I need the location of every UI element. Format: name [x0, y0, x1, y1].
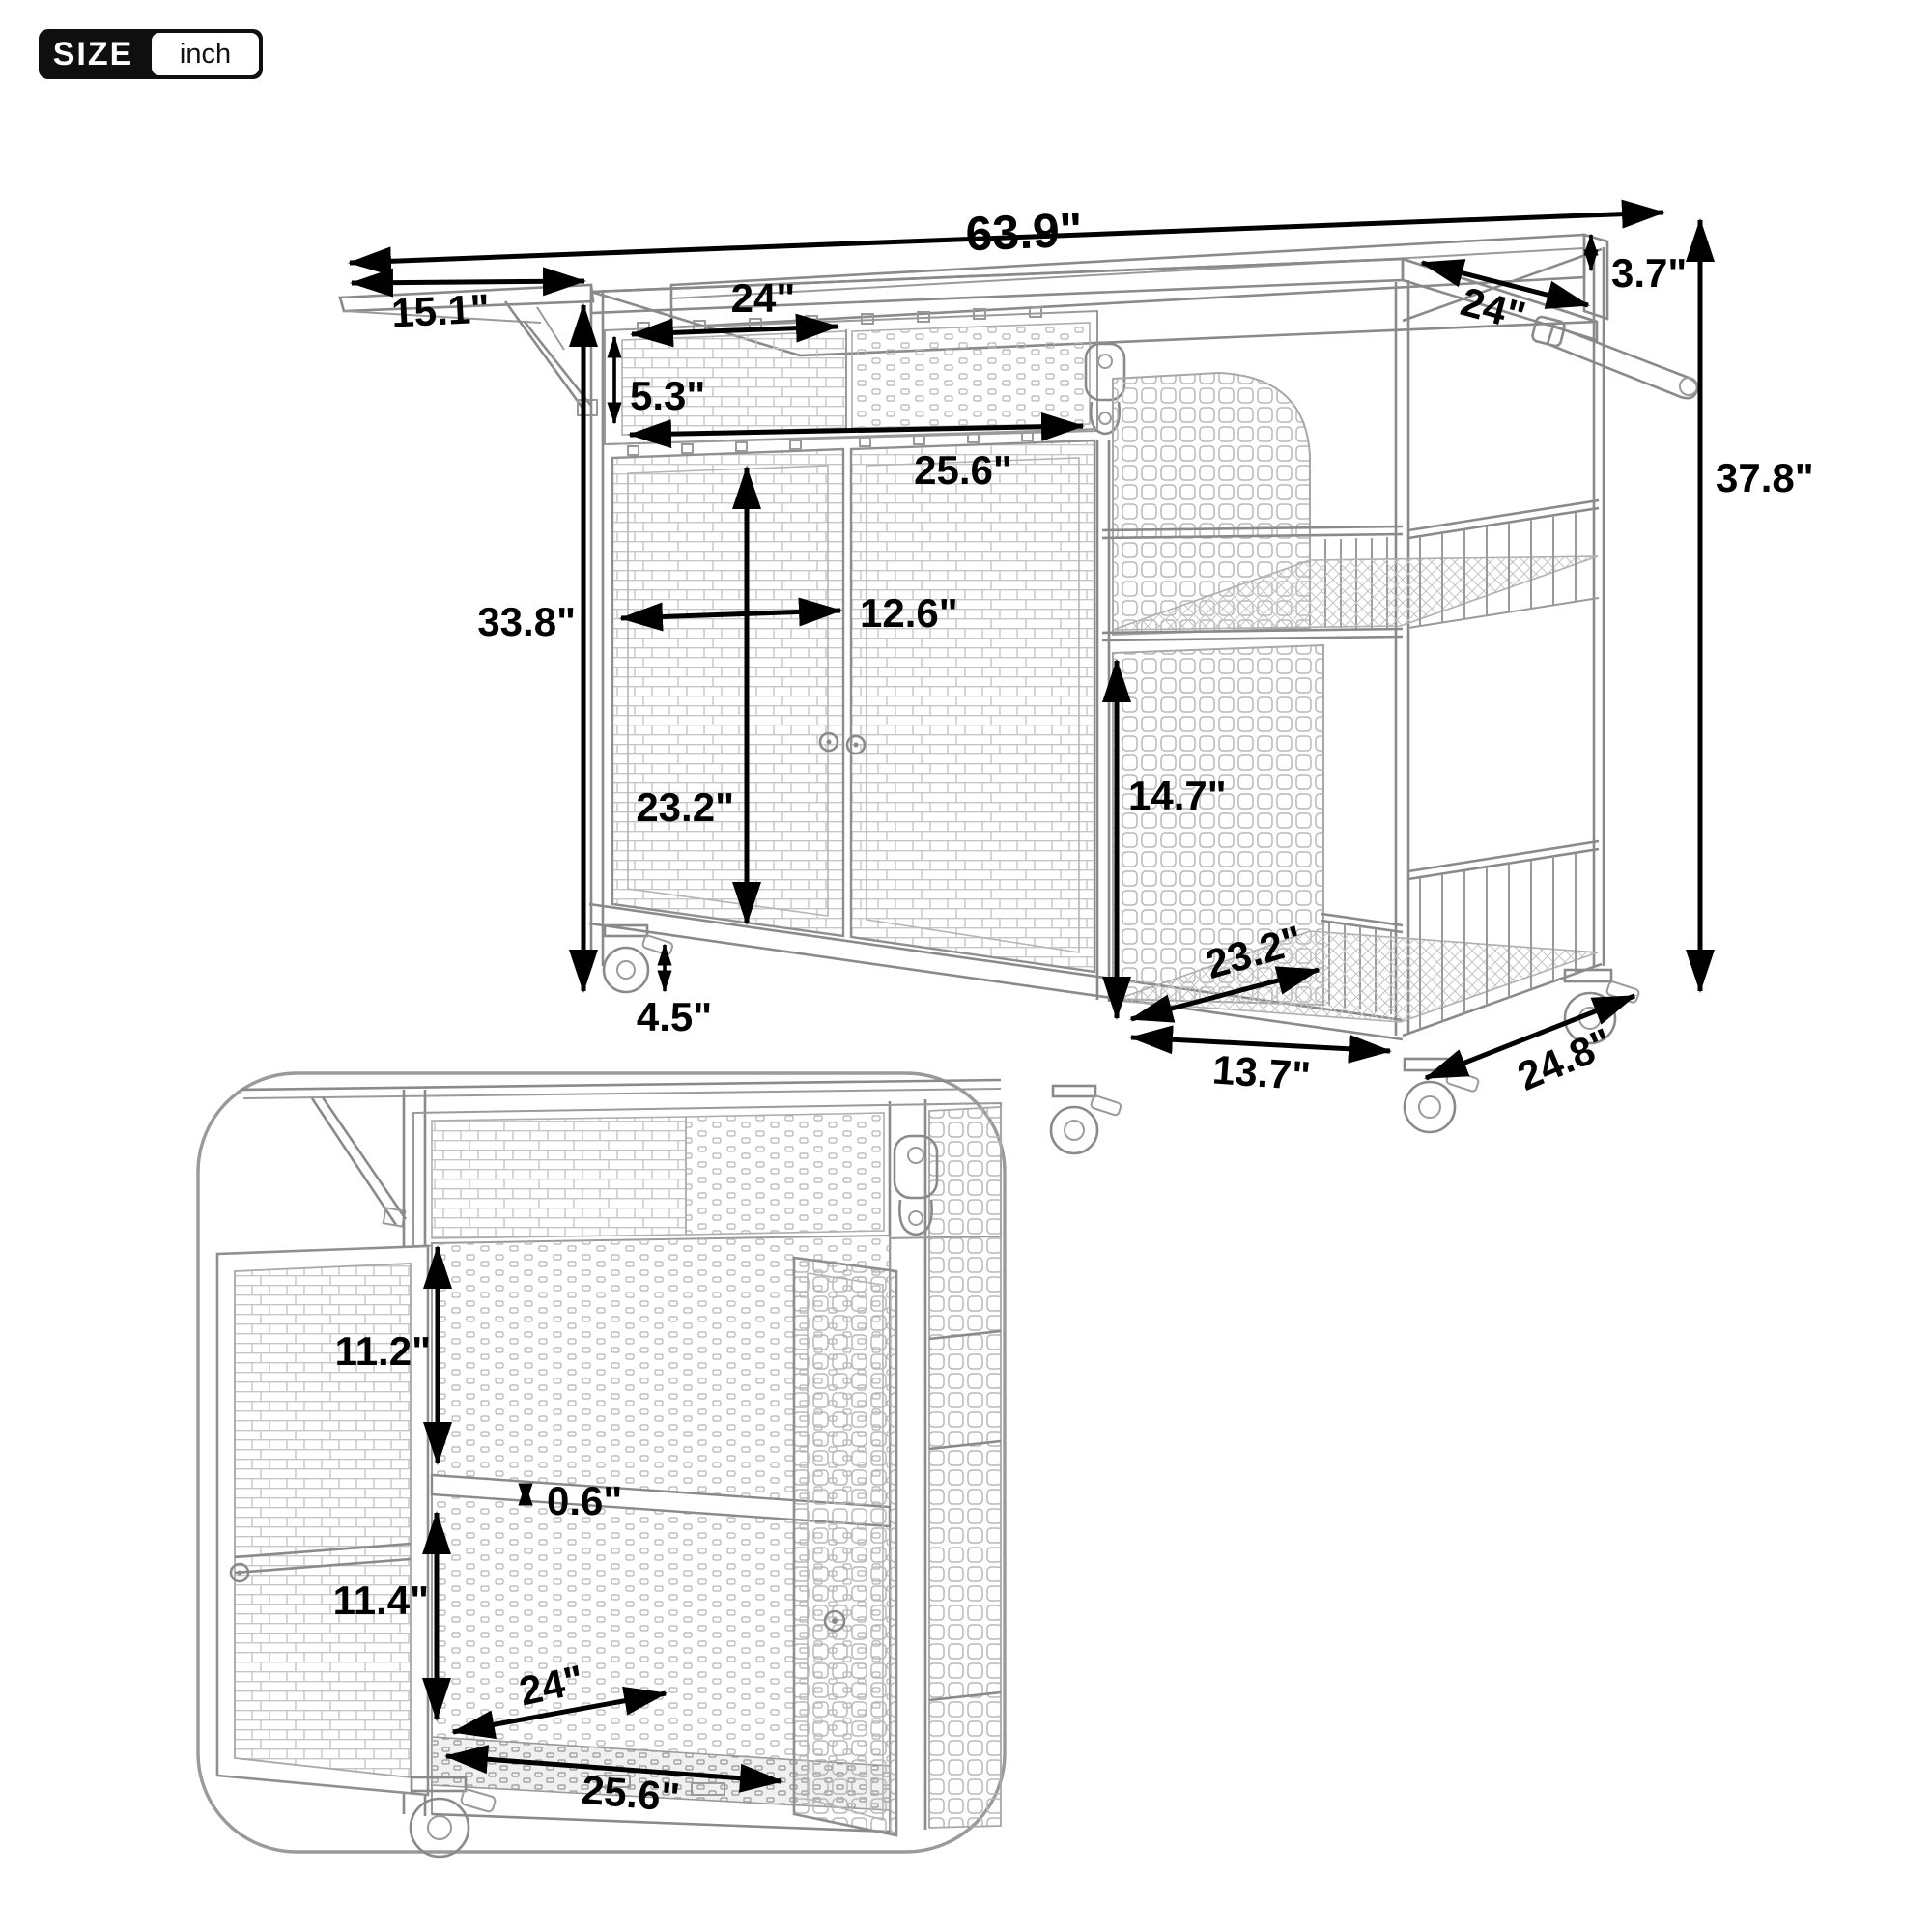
dim-side-shelf-width: 13.7" [1131, 1037, 1390, 1098]
dim-label-ground-clearance: 4.5" [637, 994, 712, 1039]
dim-label-top-opening-width: 24" [731, 275, 796, 321]
inset-diagram: 11.2" 0.6" 11.4" 24" 25.6" [198, 1073, 1005, 1857]
dim-body-height: 33.8" [477, 305, 583, 991]
slot-right-panel [852, 323, 1090, 428]
side-lower-rail-bottom [1408, 849, 1599, 879]
dim-label-side-shelf-width: 13.7" [1211, 1047, 1313, 1099]
back-rail-bar [671, 235, 1584, 327]
right-side-face [1408, 316, 1697, 1030]
inset-slot-right-panel [686, 1113, 884, 1235]
diagram-canvas: 63.9" 15.1" 24" 5.3" 25.6" [0, 0, 1932, 1932]
inset-right-side-strip [929, 1107, 1001, 1828]
dim-total-width: 63.9" [350, 203, 1663, 263]
inset-slot-left-panel [432, 1117, 686, 1238]
inset-right-door-open [794, 1258, 896, 1835]
dim-label-upper-compartment-height: 11.2" [335, 1328, 431, 1374]
side-lower-rail-top [1408, 841, 1599, 871]
dimension-diagram-page: SIZE inch [0, 0, 1932, 1932]
right-shelves-front [1102, 373, 1598, 1022]
dim-label-lower-compartment-height: 11.4" [333, 1577, 429, 1623]
dim-label-total-width: 63.9" [964, 203, 1083, 262]
dim-label-body-height: 33.8" [477, 599, 576, 644]
dim-label-cabinet-width: 25.6" [914, 447, 1012, 493]
inset-side-wicker [929, 1107, 1001, 1828]
dim-label-shelf-thickness: 0.6" [547, 1478, 622, 1523]
dim-total-height: 37.8" [1700, 220, 1814, 991]
dim-label-top-opening-height: 5.3" [630, 373, 705, 418]
dim-label-back-rail-height: 3.7" [1611, 250, 1687, 296]
dim-label-base-depth: 24.8" [1511, 1019, 1619, 1099]
side-upper-rail-bottom [1408, 508, 1599, 538]
main-diagram: 63.9" 15.1" 24" 5.3" 25.6" [340, 203, 1814, 1153]
inset-right-door-panel [794, 1258, 896, 1835]
dim-label-side-shelf-height: 14.7" [1128, 773, 1227, 818]
dim-label-door-height: 23.2" [636, 784, 734, 830]
handle-end-cap [1680, 378, 1697, 395]
right-door [851, 440, 1094, 972]
lower-fence-rail-bottom [1321, 921, 1403, 932]
inset-left-door-knob-dot [238, 1571, 242, 1576]
dim-label-door-width: 12.6" [860, 590, 958, 636]
handle-bar [1548, 326, 1697, 398]
caster-front-middle [1051, 1086, 1122, 1153]
side-upper-rail-top [1408, 500, 1599, 530]
left-door [612, 449, 843, 936]
dim-ground-clearance: 4.5" [637, 945, 712, 1039]
upper-shelf-front-bottom [1102, 637, 1403, 640]
cabinet-doors [605, 429, 1097, 972]
dim-label-interior-width: 25.6" [580, 1767, 681, 1821]
dim-label-total-height: 37.8" [1716, 455, 1814, 500]
dim-back-rail-height: 3.7" [1591, 235, 1687, 296]
dim-label-leaf-depth: 15.1" [390, 285, 491, 335]
inset-right-door-knob-dot [832, 1618, 838, 1624]
dim-base-depth: 24.8" [1426, 996, 1634, 1099]
lower-fence-rail-top [1321, 914, 1403, 925]
